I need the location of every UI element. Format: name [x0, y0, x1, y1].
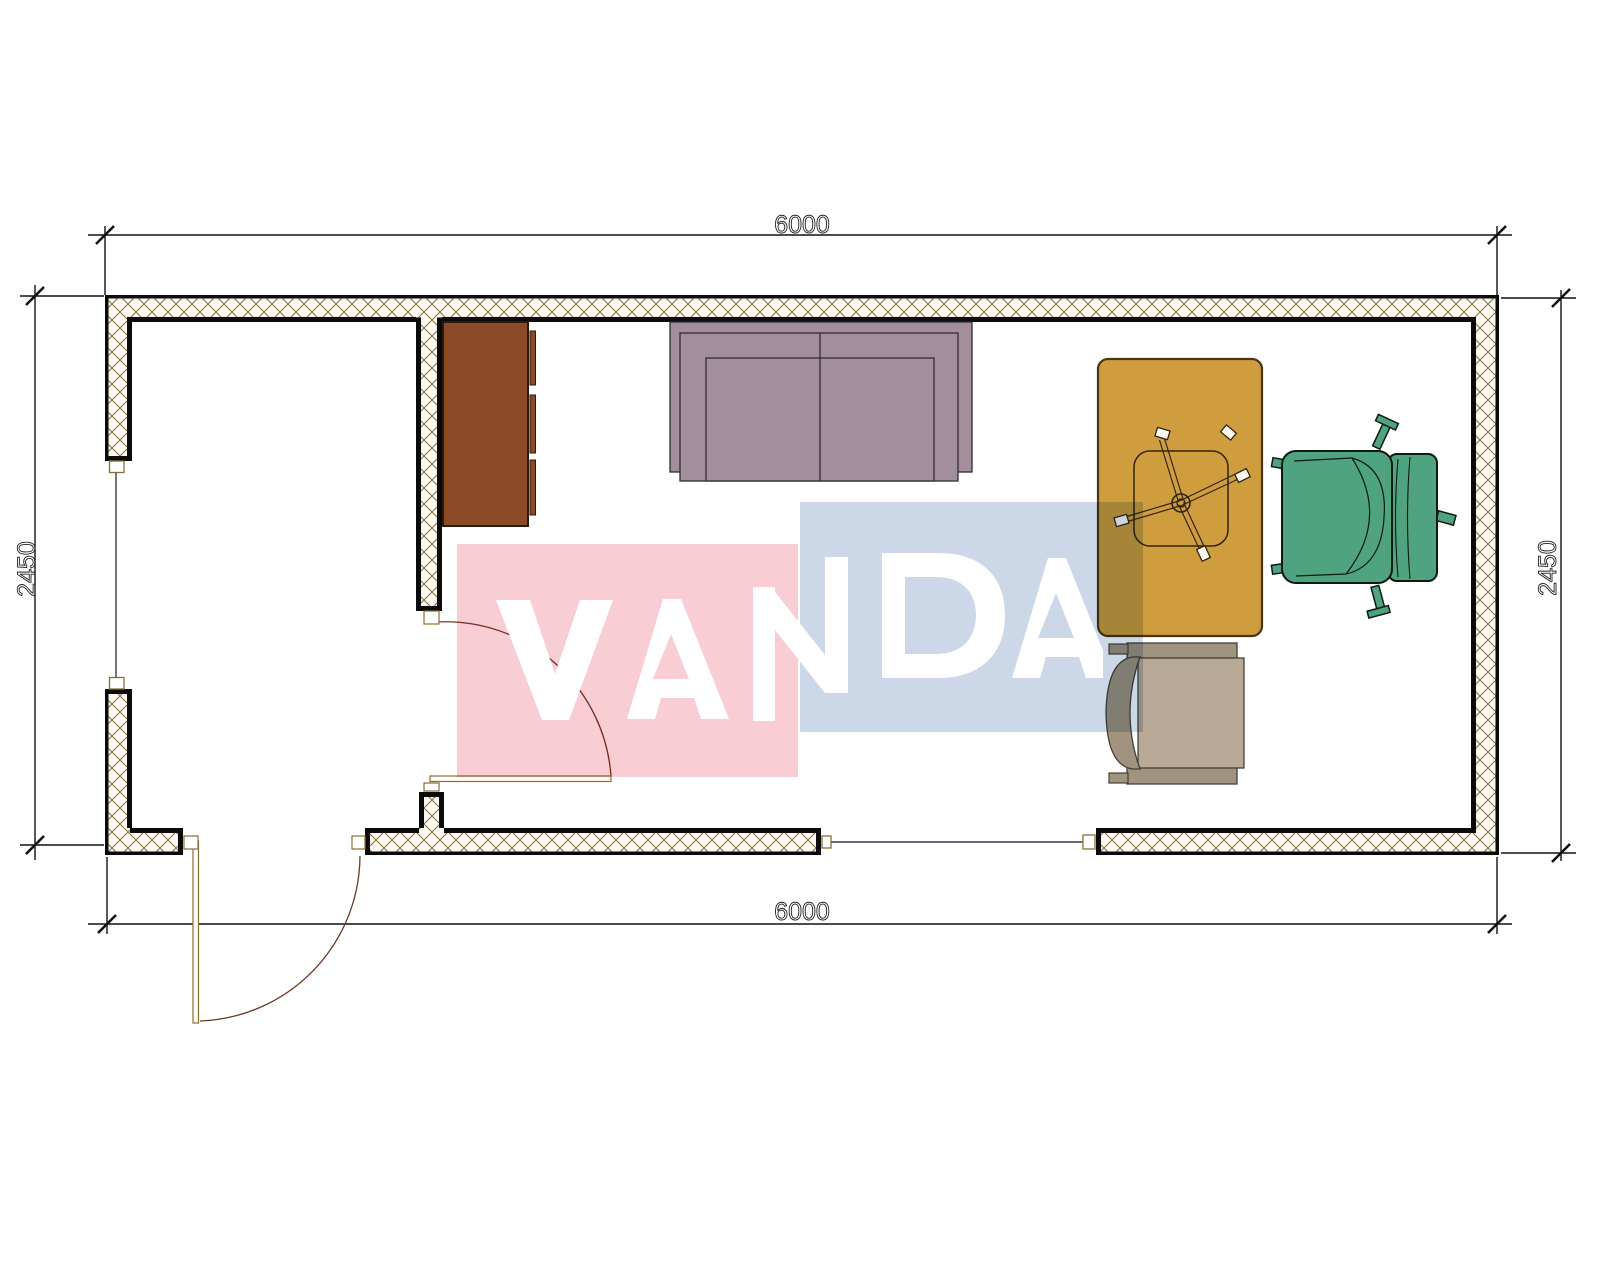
svg-text:6000: 6000 — [774, 898, 830, 926]
svg-text:6000: 6000 — [774, 211, 830, 239]
svg-text:2450: 2450 — [13, 541, 41, 597]
svg-text:2450: 2450 — [1534, 540, 1562, 596]
